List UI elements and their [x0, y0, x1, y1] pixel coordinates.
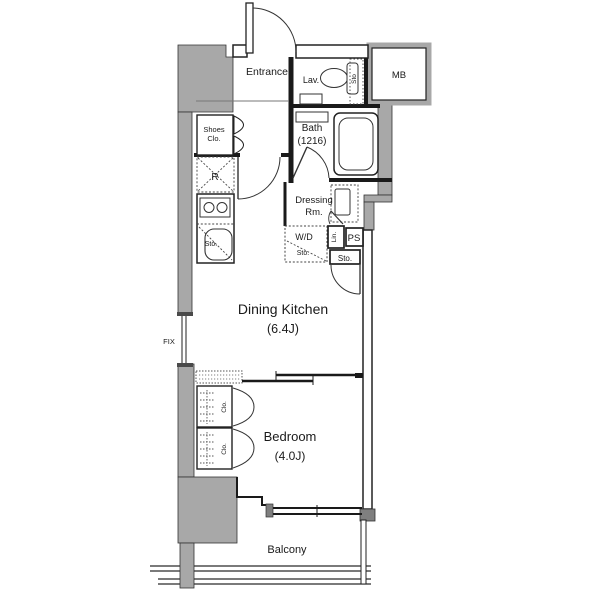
- counter-hatch-strip: [196, 371, 242, 383]
- storage-door-arc: [331, 265, 360, 294]
- floor-plan: Entrance Lav. Sto MB Bath (1216) Shoes C…: [0, 0, 600, 600]
- wall-balcony-divider: [180, 543, 194, 588]
- window-cap-left: [266, 504, 273, 517]
- dressing-room-label-2: Rm.: [305, 207, 322, 218]
- bath-counter: [296, 112, 328, 122]
- washer-dryer-label: W/D: [295, 232, 313, 242]
- wall-left-strip-mid: [178, 364, 194, 477]
- pipe-space-label: PS: [348, 233, 361, 244]
- closet-folding-doors: [233, 388, 254, 468]
- bath-door-leaf: [293, 147, 307, 178]
- wall-right-step: [364, 195, 392, 202]
- wall-bottom-left-block: [178, 477, 237, 543]
- lavatory-storage-label: Sto: [351, 74, 358, 84]
- bath-size-label: (1216): [298, 136, 327, 147]
- wall-left-strip-upper: [178, 112, 192, 315]
- entrance-label: Entrance: [246, 66, 288, 78]
- balcony-right-wall: [361, 520, 366, 584]
- lavatory-label: Lav.: [303, 75, 319, 85]
- wall-steps: [237, 477, 272, 505]
- lavatory-step-box: [300, 94, 322, 104]
- entrance-door-arc: [253, 8, 296, 52]
- dressing-room-fixtures: [329, 185, 358, 224]
- dk-door-arc: [238, 157, 280, 199]
- floor-plan-drawing: Entrance Lav. Sto MB Bath (1216) Shoes C…: [0, 0, 600, 600]
- toilet-bowl: [321, 69, 348, 88]
- bedroom-south: [237, 477, 366, 584]
- meter-box-label: MB: [392, 70, 406, 81]
- closet-lower-label: Clo.: [221, 443, 228, 455]
- bath-door-arc: [307, 147, 329, 178]
- entrance-door-leaf: [246, 3, 253, 53]
- wall-ps-right: [364, 202, 374, 230]
- fix-window: [177, 312, 193, 367]
- washbasin: [335, 189, 350, 215]
- entrance-door: [246, 3, 296, 53]
- fix-window-label: FIX: [163, 337, 175, 346]
- refrigerator-label: R: [211, 172, 218, 183]
- balcony-label: Balcony: [267, 544, 307, 556]
- bath-label: Bath: [302, 123, 323, 134]
- closet-upper-label: Clo.: [221, 401, 228, 413]
- shoes-closet-label-2: Clo.: [207, 134, 220, 143]
- wall-top-left-block: [178, 45, 233, 112]
- linen-label: Lin.: [331, 232, 338, 243]
- kitchen-storage-label: Sto.: [205, 241, 218, 248]
- dk-door: [238, 157, 280, 199]
- bedroom-size-label: (4.0J): [275, 449, 306, 463]
- hall-storage-label: Sto.: [338, 254, 352, 263]
- shoes-closet-label-1: Shoes: [203, 125, 225, 134]
- bedroom-closets: [197, 386, 254, 469]
- bedroom-label: Bedroom: [264, 429, 317, 444]
- washer-storage-label: Sto.: [297, 250, 310, 257]
- shoes-closet-folding-door: [234, 116, 244, 154]
- dressing-room-label-1: Dressing: [295, 195, 333, 206]
- wall-right-cap: [360, 509, 375, 521]
- dining-kitchen-size-label: (6.4J): [267, 322, 299, 336]
- dining-kitchen-label: Dining Kitchen: [238, 301, 328, 317]
- bedroom-partition: [196, 371, 363, 385]
- wall-right-double: [363, 230, 372, 509]
